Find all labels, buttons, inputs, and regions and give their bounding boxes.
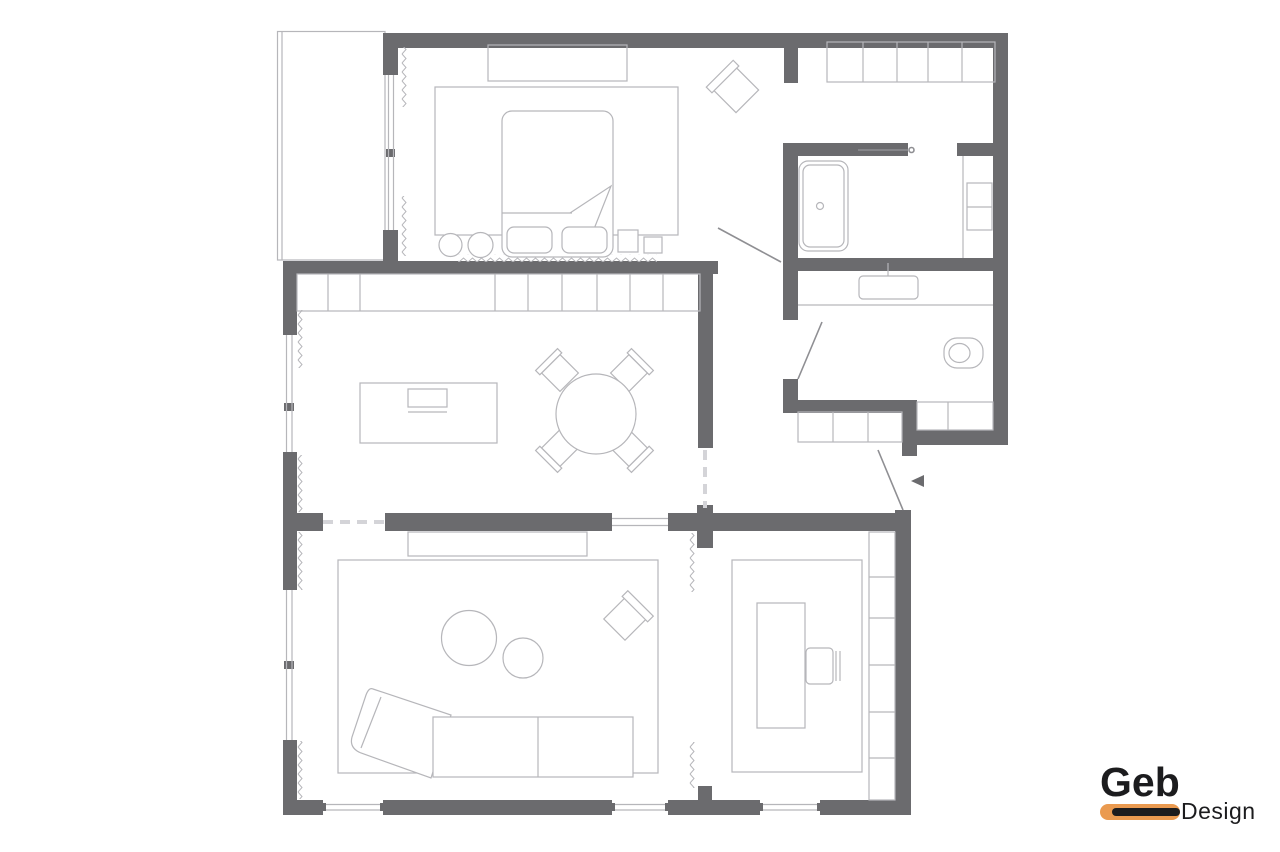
pouf bbox=[439, 234, 462, 257]
wall-segment bbox=[283, 261, 718, 274]
curtain bbox=[297, 455, 305, 512]
entrance-arrow-icon bbox=[911, 475, 924, 487]
wall-segment bbox=[783, 258, 1008, 271]
nightstand bbox=[618, 230, 638, 252]
bedroom-door-swing bbox=[718, 228, 781, 262]
wall-segment bbox=[783, 143, 798, 320]
office-window-south bbox=[757, 803, 823, 811]
kitchen-counter-dividers bbox=[328, 274, 663, 311]
curtain bbox=[297, 741, 305, 799]
office bbox=[732, 532, 895, 800]
pouf bbox=[468, 233, 493, 258]
wall-segment bbox=[383, 33, 398, 75]
kitchen-island bbox=[360, 383, 497, 443]
curtain bbox=[399, 196, 407, 256]
wall-segment bbox=[698, 786, 712, 802]
wall-segment bbox=[283, 513, 323, 531]
bed-pillow bbox=[507, 227, 552, 253]
bed-pillow bbox=[562, 227, 607, 253]
wall-segment bbox=[283, 740, 297, 815]
living-room bbox=[338, 532, 658, 778]
wall-segment bbox=[383, 800, 612, 815]
office-shelf bbox=[869, 532, 895, 800]
brand-subtitle: Design bbox=[1181, 798, 1256, 825]
nightstand bbox=[644, 237, 662, 253]
wc-sink bbox=[859, 276, 918, 299]
wall-segment bbox=[783, 379, 798, 412]
coffee-table-large bbox=[442, 611, 497, 666]
wall-segment bbox=[383, 230, 398, 261]
living-window-south-1 bbox=[320, 803, 386, 811]
floor-plan-canvas: Geb Design bbox=[0, 0, 1280, 852]
closet-outline bbox=[917, 402, 993, 430]
curtain bbox=[689, 742, 697, 788]
sofa-body bbox=[433, 717, 633, 777]
wall-segment bbox=[895, 510, 911, 815]
brand-logo: Geb Design bbox=[1100, 762, 1260, 825]
curtain bbox=[689, 533, 697, 592]
curtain bbox=[297, 532, 305, 590]
curtain bbox=[297, 310, 305, 368]
tv-console bbox=[408, 532, 587, 556]
wall-segment bbox=[385, 33, 1008, 48]
dining-table bbox=[556, 374, 636, 454]
wall-segment bbox=[668, 513, 895, 531]
bedroom-armchair bbox=[706, 60, 760, 114]
logo-accent-pill bbox=[1100, 804, 1180, 820]
floor-plan-drawing bbox=[0, 0, 1280, 852]
kitchen-window bbox=[287, 335, 293, 452]
wall-segment bbox=[783, 400, 917, 413]
sofa bbox=[351, 689, 633, 778]
bathroom bbox=[799, 148, 992, 259]
wall-segment bbox=[820, 800, 911, 815]
closet-outline bbox=[798, 412, 902, 442]
living-window-south-2 bbox=[609, 803, 671, 811]
wall-segment bbox=[911, 430, 1008, 445]
wall-segment bbox=[784, 33, 798, 83]
dresser bbox=[488, 45, 627, 81]
toilet bbox=[944, 338, 983, 368]
curtain bbox=[399, 47, 407, 107]
interior-glass-panel bbox=[612, 519, 668, 526]
wc bbox=[798, 263, 993, 368]
kitchen bbox=[297, 274, 700, 472]
wall-segment bbox=[957, 143, 993, 156]
brand-name: Geb bbox=[1100, 762, 1260, 803]
desk-chair bbox=[806, 648, 840, 684]
wc-door-swing bbox=[798, 322, 822, 379]
living-armchair bbox=[602, 591, 654, 643]
wall-segment bbox=[668, 800, 760, 815]
wall-segment bbox=[385, 513, 612, 531]
desk bbox=[757, 603, 805, 728]
logo-black-bar bbox=[1112, 808, 1180, 816]
bedroom bbox=[435, 45, 761, 258]
entry-door-swing bbox=[878, 450, 903, 510]
balcony-railing bbox=[278, 32, 386, 261]
balcony bbox=[278, 32, 386, 261]
coffee-table-small bbox=[503, 638, 543, 678]
shelf-outline bbox=[869, 532, 895, 800]
kitchen-counter bbox=[297, 274, 700, 311]
wall-segment bbox=[993, 33, 1008, 445]
dining-set bbox=[536, 349, 654, 473]
